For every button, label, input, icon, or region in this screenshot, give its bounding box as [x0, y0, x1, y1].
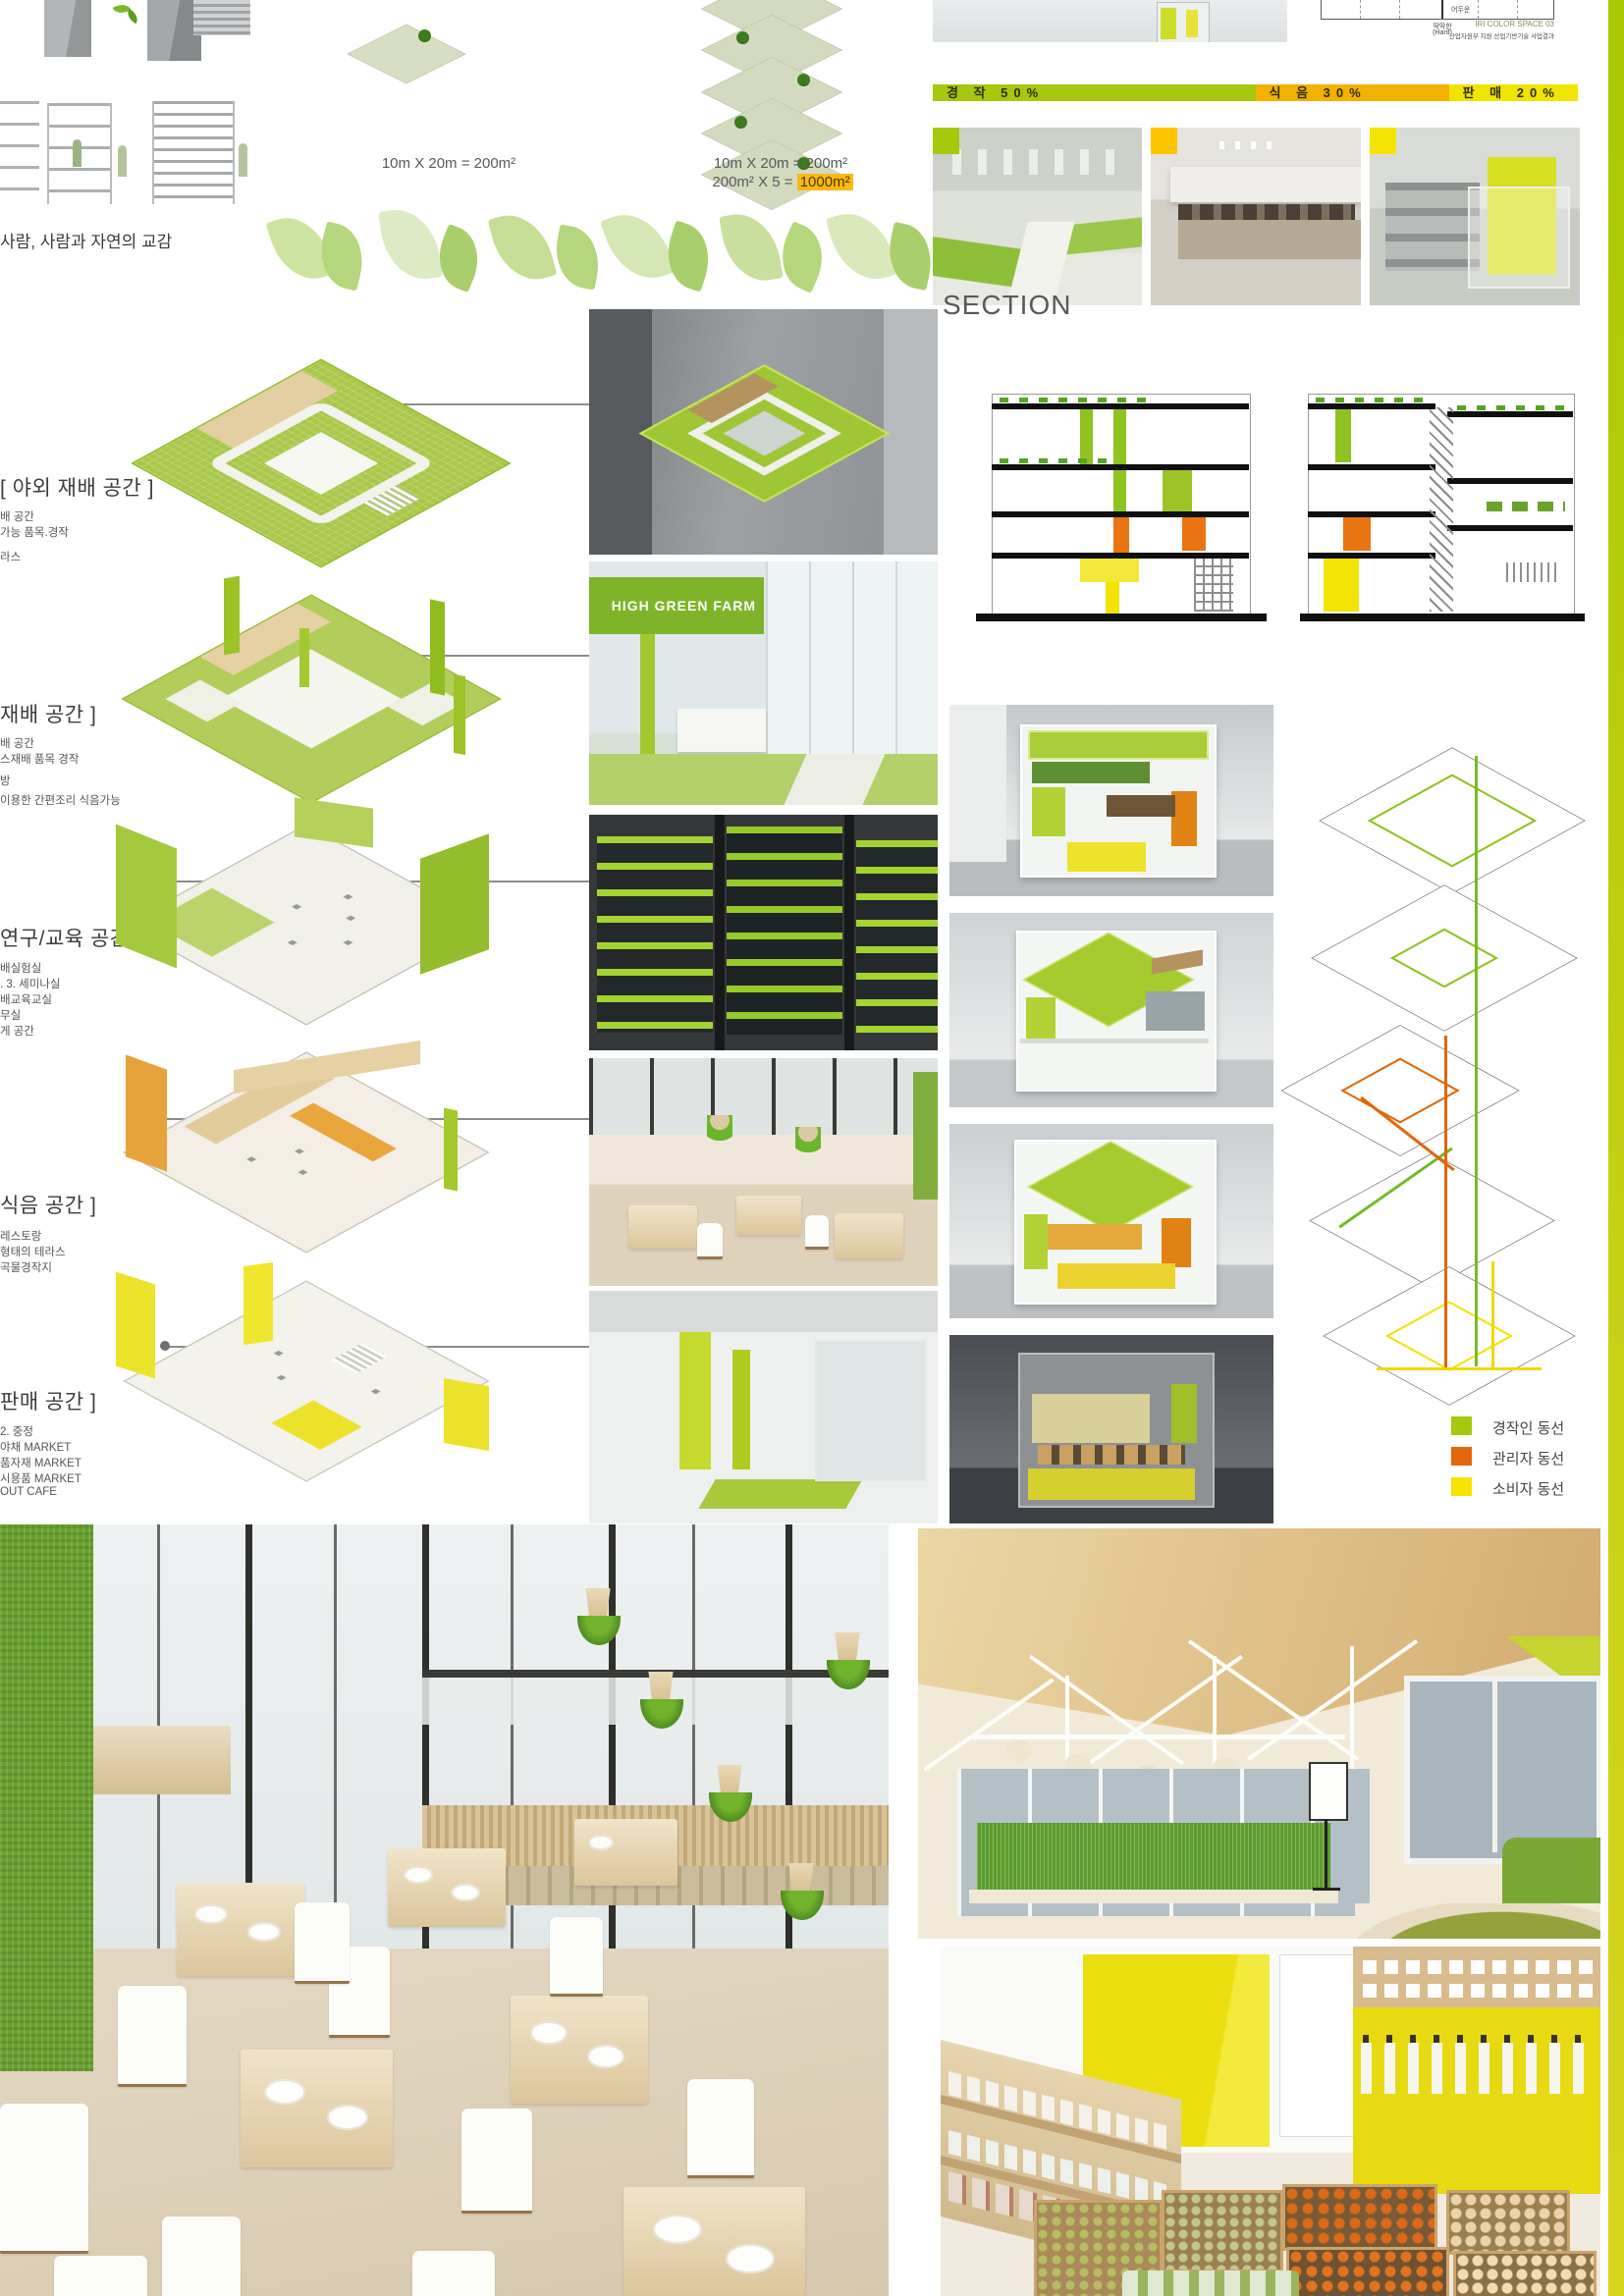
yellow-wall-fin	[444, 1378, 489, 1451]
orange-room-patch	[1343, 517, 1371, 551]
floor-label-sales: 판매 공간 ] 2. 중정 야채 MARKET 품자재 MARKET 시용품 M…	[0, 1386, 96, 1498]
render-building-cutaway-1	[949, 705, 1273, 896]
model-cube-lime-face	[1161, 8, 1176, 39]
yellow-wall-fin	[244, 1262, 273, 1345]
orange-panel	[1162, 1218, 1191, 1267]
wireframe-plate-roof	[1319, 747, 1586, 893]
planter-boxes	[1487, 502, 1565, 511]
wireframe-plate-2	[1311, 884, 1578, 1031]
floor-label-line: 시용품 MARKET	[0, 1470, 96, 1486]
furniture-mark	[346, 916, 355, 921]
photo-lobby-render	[589, 1291, 938, 1523]
dining-chair	[550, 1917, 603, 1997]
leaf-icon	[378, 204, 443, 284]
program-color-chip-yellow	[1370, 128, 1396, 154]
leader-dot	[160, 1341, 170, 1351]
truss-chord	[972, 1735, 1345, 1739]
ceiling-lights	[1219, 141, 1278, 149]
floor-label-line: 레스토랑	[0, 1228, 96, 1244]
furniture-mark	[292, 904, 301, 909]
photo-roof-garden-render	[589, 309, 938, 555]
furniture-mark	[298, 1170, 308, 1175]
roof-lime-band	[1028, 730, 1209, 760]
yellow-room-patch	[1324, 559, 1359, 612]
model-cube-yellow-face	[1186, 10, 1198, 37]
photo-sales-interior	[1370, 128, 1580, 305]
tree-icon	[797, 74, 810, 86]
side-counter	[93, 1726, 231, 1794]
round-green-platform	[1355, 1903, 1600, 1939]
farm-sign-board: HIGH GREEN FARM	[589, 577, 764, 634]
circulation-line-consumer	[1491, 1261, 1494, 1367]
lit-interior	[1032, 1394, 1150, 1443]
lime-column	[640, 634, 655, 758]
legend-label-consumer: 소비자 동선	[1492, 1478, 1564, 1499]
floor-label-line: 야채 MARKET	[0, 1439, 96, 1455]
dining-table	[736, 1196, 801, 1235]
floor-label-line: 배 공간	[0, 735, 121, 751]
lime-glass-panel	[1024, 1214, 1048, 1269]
furniture-mark	[288, 940, 298, 945]
floor-label-dining: 식음 공간 ] 레스토랑 형태의 테라스 곡물경작지	[0, 1190, 96, 1275]
slab-stack-icon	[193, 0, 250, 35]
green-wall-fin	[430, 599, 445, 695]
planter-foliage	[577, 1616, 621, 1645]
yellow-room-patch	[1080, 559, 1139, 582]
green-floor-mat	[698, 1479, 862, 1509]
plan-plate-roof	[131, 358, 511, 567]
plan-stair-hatch	[331, 1343, 387, 1373]
floor-label-heading: [ 야외 재배 공간 ]	[0, 472, 154, 502]
leaf-icon	[882, 222, 939, 291]
furniture-mark	[371, 1389, 381, 1394]
planting-dashes	[1316, 398, 1424, 402]
wireframe-inner-square	[1390, 929, 1498, 988]
interior-green-terrace	[1032, 762, 1150, 783]
section-title: SECTION	[943, 290, 1071, 321]
plan-orange-zone	[290, 1102, 397, 1161]
wireframe-inner-orange	[1340, 1058, 1460, 1124]
grow-rack	[727, 827, 842, 1035]
dining-chair	[0, 2104, 88, 2254]
photo-restaurant-render	[589, 1058, 938, 1286]
planter-foliage	[781, 1891, 824, 1920]
floor-label-heading: 재배 공간 ]	[0, 699, 121, 728]
furniture-mark	[277, 1375, 287, 1380]
green-column	[1113, 470, 1126, 511]
green-wall-sliver	[913, 1072, 938, 1200]
circulation-line-manager	[1444, 1036, 1447, 1367]
cafe-counter-dark	[1178, 204, 1355, 220]
grow-rack	[856, 840, 938, 1033]
produce-crate-onions	[1453, 2251, 1597, 2296]
planting-dashes	[1457, 405, 1565, 410]
plate	[726, 2244, 775, 2273]
window-mullion-thin	[334, 1524, 337, 1949]
dining-table	[241, 2050, 393, 2167]
white-door	[1279, 1954, 1355, 2137]
hanging-plant	[707, 1115, 732, 1141]
right-edge-accent-strip	[1608, 0, 1624, 2296]
floor-slab	[1308, 511, 1435, 517]
dining-chair	[697, 1223, 723, 1259]
dining-table	[177, 1883, 304, 1976]
right-window-mullion	[1492, 1676, 1497, 1852]
floor-slab	[1447, 478, 1573, 484]
farm-sign-text: HIGH GREEN FARM	[612, 598, 756, 614]
chart-axis-line	[1441, 0, 1443, 19]
legend-chip-consumer	[1451, 1477, 1472, 1496]
ratio-segment-sales: 판 매 20%	[1449, 84, 1578, 101]
plate	[404, 1866, 433, 1884]
interior-hatch	[1194, 559, 1233, 612]
plate	[247, 1922, 281, 1942]
floor-slab	[1447, 525, 1573, 531]
interior-floor-line	[1020, 1039, 1209, 1043]
plate	[194, 1904, 228, 1924]
planter-foliage	[709, 1792, 752, 1822]
yellow-base	[1067, 842, 1146, 872]
produce-crate-pale	[1162, 2190, 1283, 2272]
green-room-patch	[1163, 470, 1192, 511]
legend-label-farmer: 경작인 동선	[1492, 1417, 1564, 1438]
orange-band	[1044, 1224, 1142, 1250]
plate	[327, 2105, 368, 2130]
floor-slab	[1447, 411, 1573, 417]
legend-chip-manager	[1451, 1447, 1472, 1466]
rack-post	[844, 815, 854, 1050]
hanging-planter	[640, 1672, 683, 1731]
stack-area-highlight: 1000m²	[797, 174, 853, 190]
floor-label-line: 형태의 테라스	[0, 1244, 96, 1259]
building-block-icon	[44, 0, 91, 57]
leaf-icon	[600, 203, 677, 291]
yellow-glow-base	[1028, 1468, 1195, 1500]
planter-foliage	[827, 1660, 870, 1689]
plan-room-white	[166, 680, 243, 722]
floor-label-line: 곡물경작지	[0, 1259, 96, 1275]
hanging-planter	[577, 1588, 621, 1647]
person-silhouette	[239, 143, 247, 177]
bottle-caps-row	[1363, 2035, 1595, 2043]
tree-icon	[734, 116, 747, 129]
yellow-band	[1057, 1263, 1175, 1289]
dining-table	[628, 1205, 697, 1249]
yellow-column	[1106, 582, 1119, 614]
floor-label-line: 이용한 간편조리 식음가능	[0, 792, 121, 808]
ground-line	[1300, 614, 1585, 621]
plan-yellow-zone	[272, 1400, 362, 1450]
produce-crate-carrots	[1286, 2247, 1449, 2296]
chart-credit: 산업자원부 지원 산업기반기술 사업결과	[1407, 30, 1554, 40]
photo-restaurant-large	[0, 1524, 889, 2296]
render-building-cutaway-2	[949, 913, 1273, 1107]
plot-plate-diagram	[347, 25, 466, 84]
legend-chip-farmer	[1451, 1416, 1472, 1435]
lime-wall-panel	[679, 1332, 711, 1469]
presentation-board: { "top": { "caption": "사람, 사람과 자연의 교감", …	[0, 0, 1624, 2296]
floor-label-outdoor-cultivation: [ 야외 재배 공간 ] 배 공간 가능 품목.경작 라스	[0, 472, 154, 564]
render-building-night	[949, 1335, 1273, 1523]
frame-tower-diagram	[0, 101, 39, 204]
floor-label-heading: 판매 공간 ]	[0, 1386, 96, 1415]
floor-label-line: 게 공간	[0, 1023, 141, 1039]
interior-hatch	[1506, 562, 1561, 582]
leaf-icon	[826, 204, 898, 290]
glass-partition	[815, 1340, 927, 1481]
ratio-segment-dining: 식 음 30%	[1256, 84, 1449, 101]
dining-table	[574, 1819, 677, 1886]
dining-chair	[162, 2216, 241, 2296]
easel-feet	[1313, 1888, 1340, 1891]
furniture-mark	[246, 1156, 256, 1161]
floor-label-line: . 3. 세미나실	[0, 976, 141, 991]
wood-canopy	[1107, 795, 1175, 817]
dining-chair	[118, 1986, 187, 2087]
green-turf-floor	[589, 754, 938, 805]
tree-icon	[418, 29, 431, 42]
dining-chair	[412, 2251, 495, 2296]
orange-room-patch	[1182, 517, 1206, 551]
orange-wall-fin	[126, 1054, 167, 1171]
cafe-counter-body	[1178, 220, 1361, 259]
shelf-box-row	[1363, 1984, 1595, 1998]
plan-plate-sales	[123, 1280, 489, 1481]
stack-area-label-2-prefix: 200m² X 5 =	[712, 174, 792, 190]
produce-crate-carrots	[1282, 2184, 1437, 2251]
floor-slab	[1308, 403, 1435, 409]
dining-table	[511, 1996, 648, 2104]
yellow-wall-fin	[116, 1272, 155, 1379]
plot-area-label: 10m X 20m = 200m²	[346, 155, 552, 172]
green-column	[1335, 409, 1351, 462]
ratio-segment-cultivation: 경 작 50%	[933, 84, 1256, 101]
chart-gridline	[1478, 0, 1479, 19]
planting-dashes	[1000, 458, 1117, 463]
chart-inner-label: 어두운	[1451, 5, 1470, 15]
furniture-mark	[274, 1351, 284, 1356]
dining-table	[623, 2187, 805, 2296]
green-wall-fin	[444, 1108, 458, 1192]
right-window	[1404, 1676, 1600, 1864]
floor-label-line: 스재배 품목 경작	[0, 751, 121, 767]
program-color-chip-amber	[1151, 128, 1177, 154]
circulation-line-consumer-branch	[1377, 1367, 1542, 1370]
photo-farm-market-render: HIGH GREEN FARM	[589, 561, 938, 805]
easel-board	[1309, 1762, 1348, 1821]
leaf-icon	[125, 9, 141, 24]
grow-rack	[597, 836, 713, 1033]
leaf-icon	[488, 206, 558, 289]
iri-color-space-chart: 어두운 딱딱한 (Hard) IRI COLOR SPACE 03 산업자원부 …	[1321, 0, 1554, 41]
floor-slab	[1308, 464, 1435, 470]
window-band	[589, 1058, 938, 1135]
dining-table	[835, 1213, 903, 1258]
program-color-chip-green	[933, 128, 959, 154]
chart-frame	[1321, 0, 1554, 20]
grass-bed-curb	[969, 1890, 1338, 1903]
floor-label-heading: 식음 공간 ]	[0, 1190, 96, 1219]
furniture-mark	[343, 940, 352, 945]
hanging-planter	[709, 1765, 752, 1824]
plate	[264, 2079, 305, 2105]
dining-chair	[54, 2256, 147, 2296]
grass-bed	[977, 1823, 1330, 1896]
dining-chair	[687, 2079, 754, 2178]
green-wall-panel	[420, 833, 489, 974]
photo-cultivation-interior	[933, 128, 1142, 305]
render-building-cutaway-3	[949, 1124, 1273, 1318]
floor-label-line: 배교육교실	[0, 991, 141, 1007]
lime-wall-panel	[732, 1350, 750, 1469]
context-tower	[949, 705, 1006, 862]
chart-gridline	[1517, 0, 1518, 19]
floor-label-line: 가능 품목.경작	[0, 524, 154, 540]
floor-label-line: 품자재 MARKET	[0, 1455, 96, 1470]
furniture-mark	[295, 1148, 304, 1153]
green-column	[1113, 409, 1126, 464]
plan-room-white	[388, 683, 464, 725]
circulation-line-farmer	[1475, 756, 1478, 1366]
wireframe-inner-ring	[1368, 774, 1538, 868]
ceiling-band	[589, 1291, 938, 1332]
green-wall-fin	[224, 576, 240, 656]
green-wall-panel	[116, 824, 177, 968]
person-silhouette	[118, 145, 127, 177]
photo-greenhouse-hall	[918, 1528, 1600, 1939]
leaf-icon	[550, 224, 605, 290]
section-drawing-left	[976, 388, 1267, 623]
dining-chair	[461, 2109, 532, 2214]
furniture-mark	[343, 894, 352, 899]
floor-label-line: 배실험실	[0, 960, 141, 976]
pendant-lamp	[1006, 1739, 1032, 1761]
green-column	[1080, 409, 1093, 464]
plate	[587, 2045, 624, 2068]
frame-tower-diagram	[152, 101, 235, 204]
wireframe-plate-3	[1280, 1025, 1519, 1156]
bottle-row	[1361, 2043, 1595, 2094]
stair-zigzag	[1430, 407, 1453, 612]
leaves-decoration-band	[265, 196, 933, 287]
grey-glass	[1146, 991, 1205, 1031]
floor-label-line: 무실	[0, 1007, 141, 1023]
market-glass	[1468, 187, 1570, 289]
produce-shelves	[1038, 1445, 1185, 1465]
circulation-legend: 경작인 동선 관리자 동선 소비자 동선	[1451, 1414, 1608, 1507]
plate	[588, 1835, 614, 1850]
grass-wall	[0, 1524, 93, 2071]
photo-vertical-farm-render	[589, 815, 938, 1050]
rack-post	[715, 815, 725, 1050]
orange-column	[1113, 517, 1129, 553]
right-wood-shelving	[1353, 1947, 1600, 2007]
photo-top-model	[933, 0, 1287, 42]
plate	[451, 1884, 480, 1901]
lime-glass-panel	[1032, 787, 1065, 836]
dining-table	[388, 1848, 506, 1927]
section-drawing-right	[1300, 388, 1585, 623]
floor-label-cultivation: 재배 공간 ] 배 공간 스재배 품목 경작 방 이용한 간편조리 식음가능	[0, 699, 121, 808]
dining-chair	[805, 1215, 829, 1250]
floor-label-line: 라스	[0, 549, 154, 564]
green-wall-fin	[299, 628, 309, 687]
photo-dining-interior	[1151, 128, 1361, 305]
leaf-icon	[719, 208, 784, 287]
stack-area-label-1: 10m X 20m = 200m²	[677, 155, 884, 172]
plate	[530, 2021, 568, 2045]
market-stall-white	[677, 709, 766, 752]
chart-caption: IRI COLOR SPACE 03	[1468, 20, 1554, 28]
lime-accent	[1171, 1384, 1197, 1443]
ground-line	[976, 614, 1267, 621]
floor-label-line: OUT CAFE	[0, 1486, 96, 1498]
green-roof-model	[639, 364, 891, 503]
photo-market-interior	[941, 1947, 1600, 2296]
tree-icon	[736, 31, 749, 44]
planting-dashes	[1000, 398, 1157, 402]
cafe-soffit	[1170, 167, 1361, 202]
top-caption: 사람, 사람과 자연의 교감	[0, 228, 172, 252]
tower-light	[884, 309, 938, 555]
green-wall-fin	[454, 674, 465, 755]
floor-label-line: 방	[0, 773, 121, 788]
hanging-planter	[781, 1863, 824, 1922]
market-shelf-grey	[1385, 183, 1480, 271]
lime-glass-panel	[1026, 997, 1056, 1041]
program-ratio-bar: 경 작 50% 식 음 30% 판 매 20%	[933, 84, 1578, 101]
greenhouse-lamps	[952, 149, 1129, 175]
hanging-plant	[795, 1127, 821, 1152]
stack-area-label-2: 200m² X 5 = 1000m²	[660, 174, 905, 190]
chart-gridline	[1360, 0, 1361, 19]
glass-wall-grid	[766, 561, 938, 758]
leaf-icon	[312, 221, 371, 291]
produce-crate-onions	[1446, 2190, 1570, 2255]
city-diagram-group	[0, 0, 265, 211]
dining-chair	[295, 1902, 350, 1984]
wireframe-plate-5	[1323, 1266, 1575, 1406]
easel-stand	[1325, 1819, 1327, 1890]
chart-gridline	[1399, 0, 1400, 19]
person-silhouette	[73, 139, 81, 167]
plate	[653, 2215, 702, 2244]
shelf-box-row	[1363, 1960, 1595, 1974]
produce-front-greens	[1122, 2270, 1299, 2296]
hanging-planter	[827, 1632, 870, 1691]
planter-foliage	[640, 1699, 683, 1729]
floor-label-line: 2. 중정	[0, 1423, 96, 1439]
legend-label-manager: 관리자 동선	[1492, 1448, 1564, 1468]
floor-label-line: 배 공간	[0, 508, 154, 524]
